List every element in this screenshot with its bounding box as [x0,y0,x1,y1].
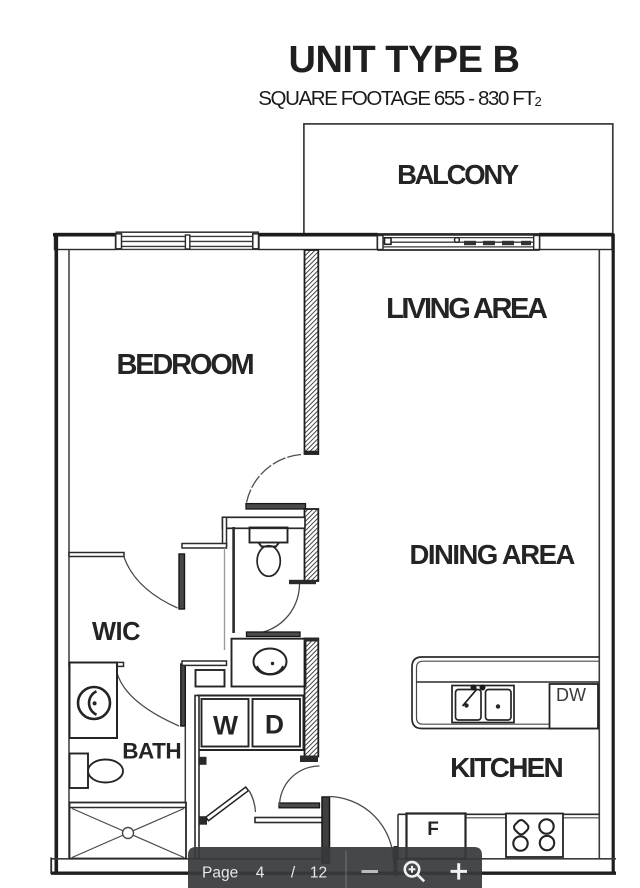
svg-text:KITCHEN: KITCHEN [450,752,562,783]
svg-text:Page: Page [202,865,238,882]
svg-text:BALCONY: BALCONY [397,159,519,190]
svg-text:UNIT TYPE B: UNIT TYPE B [289,39,520,81]
svg-text:DINING AREA: DINING AREA [410,539,576,570]
svg-text:BATH: BATH [122,739,181,764]
svg-text:F: F [427,819,439,840]
svg-text:SQUARE FOOTAGE 655 - 830 FT2: SQUARE FOOTAGE 655 - 830 FT2 [258,87,541,110]
svg-text:WIC: WIC [92,618,140,646]
svg-text:4: 4 [256,865,265,882]
svg-text:DW: DW [556,685,586,705]
svg-text:BEDROOM: BEDROOM [116,349,253,381]
svg-text:/: / [291,865,296,882]
svg-text:12: 12 [310,865,327,882]
svg-text:W: W [213,711,238,741]
svg-text:LIVING AREA: LIVING AREA [386,293,548,325]
svg-text:D: D [265,710,284,740]
